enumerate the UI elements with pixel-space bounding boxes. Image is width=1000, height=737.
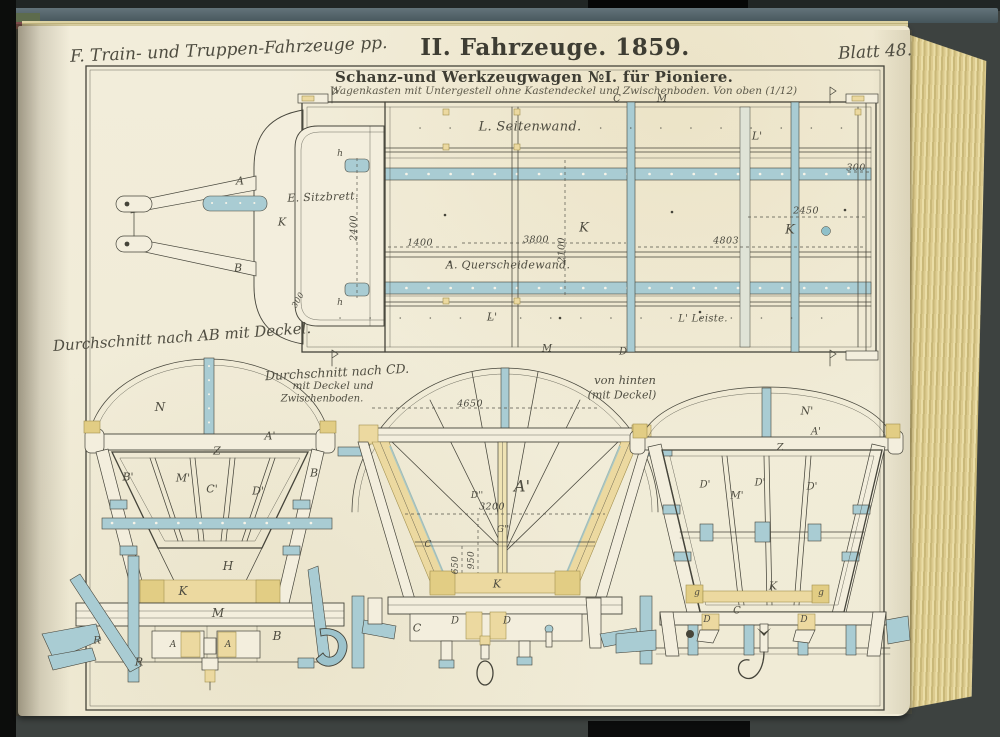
part-annotation: C [613,94,621,105]
part-annotation: N [155,400,166,414]
part-annotation: 4803 [713,236,739,247]
part-annotation: Z [777,443,784,454]
part-annotation: K [579,221,589,236]
part-annotation: N' [801,405,814,418]
part-annotation: M [657,94,667,105]
part-annotation: K [179,584,188,598]
part-annotation: M [212,606,224,620]
part-annotation: D'' [471,491,483,501]
part-annotation: 300 [290,291,306,310]
part-annotation: B [234,262,242,275]
part-annotation: C [733,606,741,617]
part-annotation: K [493,578,501,591]
part-annotation: D [619,347,627,358]
part-annotation: K [785,223,795,238]
part-annotation: D [800,615,807,625]
part-annotation: C [425,540,432,550]
part-annotation: h [337,149,343,159]
part-annotation: M' [731,491,744,502]
scanned-plate-photo: F. Train- und Truppen-Fahrzeuge pp. II. … [0,0,1000,737]
part-annotation: 2450 [793,206,819,217]
part-annotation: 1400 [407,238,433,249]
part-annotation: 950 [467,551,477,569]
part-annotation: D' [700,480,711,491]
part-annotation: L' [487,311,497,324]
part-annotation: R [93,636,101,647]
part-annotation: D [503,616,511,627]
part-annotation: A [225,640,232,650]
part-annotation: B [310,467,318,480]
part-annotation: G'' [497,525,509,535]
part-annotation: K [278,216,286,229]
part-annotation: A' [811,427,821,438]
part-annotation: A' [265,430,276,443]
label-querscheidewand: A. Querscheidewand. [446,259,571,272]
part-annotation: 2400 [349,215,360,241]
part-annotation: H [223,559,233,573]
part-annotation: B' [122,471,133,484]
part-annotation: Z [213,445,221,458]
part-annotation: R [135,656,143,669]
part-annotation: 3200 [479,502,505,513]
label-leiste: L' Leiste. [678,314,728,325]
part-annotation: D' [755,478,766,489]
part-annotation: A [236,175,244,188]
part-annotation: 300 [846,163,865,174]
part-annotation: M' [176,472,190,485]
part-annotation: 2100 [557,237,568,263]
part-annotation: D' [252,485,264,498]
part-annotation: K [769,580,777,593]
part-annotation: A' [514,477,530,496]
label-seitenwand: L. Seitenwand. [479,120,582,135]
annotation-layer: L. Seitenwand.E. Sitzbrett.A. Querscheid… [0,0,1000,737]
part-annotation: h [337,298,343,308]
part-annotation: A [170,640,177,650]
part-annotation: g [694,588,700,598]
part-annotation: 650 [451,556,461,574]
part-annotation: C' [206,483,217,496]
part-annotation: B [273,629,282,643]
label-sitzbrett: E. Sitzbrett. [287,189,359,204]
part-annotation: D [703,615,710,625]
part-annotation: g [818,588,824,598]
part-annotation: D [451,616,459,627]
part-annotation: 3800 [523,235,549,246]
part-annotation: L' [752,130,762,143]
part-annotation: M [542,344,552,355]
part-annotation: 4650 [457,399,483,410]
part-annotation: C [413,622,421,635]
part-annotation: D' [807,482,818,493]
